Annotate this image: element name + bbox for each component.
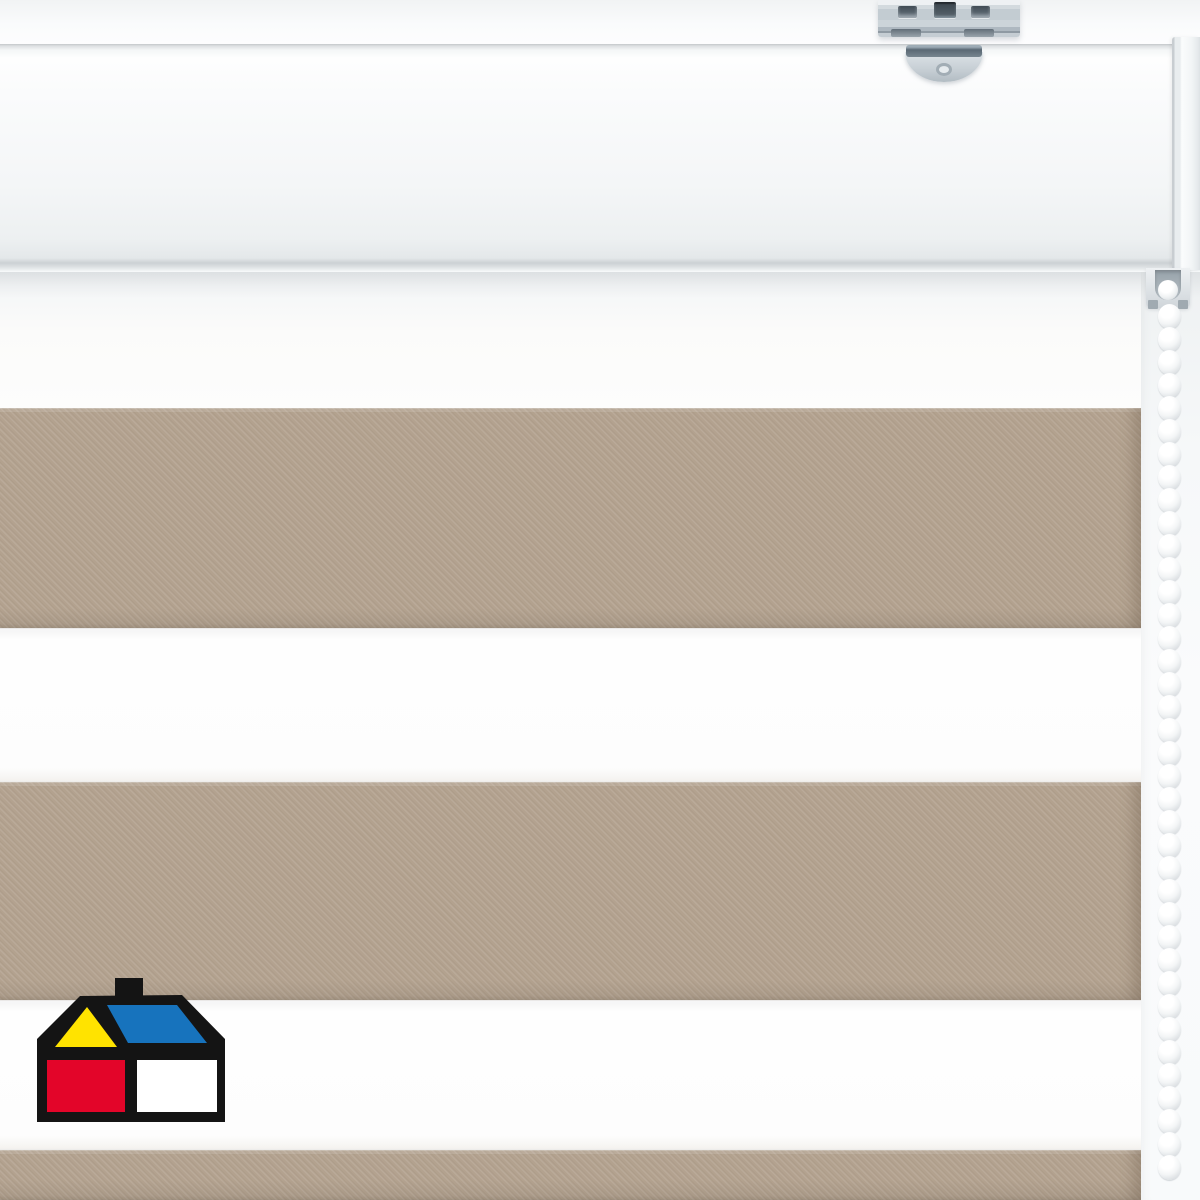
chain-bead <box>1158 948 1181 973</box>
chain-bead <box>1158 879 1181 904</box>
chain-bead <box>1158 971 1181 996</box>
chain-bead <box>1158 419 1181 444</box>
fabric-stripe-taupe <box>0 408 1141 628</box>
logo-white-square <box>137 1060 217 1112</box>
chain-bead <box>1158 787 1181 812</box>
chain-bead <box>1158 557 1181 582</box>
chain-bead <box>1158 350 1181 375</box>
pull-chain <box>1157 304 1182 1200</box>
bracket-screw-slot-middle <box>934 2 956 18</box>
chain-bead <box>1158 327 1181 352</box>
chain-bead <box>1158 741 1181 766</box>
chain-bead <box>1158 488 1181 513</box>
chain-bead <box>1158 373 1181 398</box>
headrail-shadow <box>0 272 1200 298</box>
ceiling-bracket-plate <box>878 0 1020 37</box>
chain-bead <box>1158 304 1181 329</box>
ceiling-bracket-front-tab <box>905 42 983 84</box>
chain-bead <box>1158 695 1181 720</box>
chain-bead <box>1158 856 1181 881</box>
chain-bead <box>1158 511 1181 536</box>
chain-guide <box>1146 268 1190 308</box>
chain-bead <box>1158 1109 1181 1134</box>
chain-bead <box>1158 442 1181 467</box>
bracket-notch-left <box>891 29 921 37</box>
bracket-screw-slot-left <box>898 6 917 18</box>
chain-bead <box>1158 925 1181 950</box>
chain-bead <box>1158 833 1181 858</box>
chain-bead <box>1158 1040 1181 1065</box>
chain-bead <box>1158 1086 1181 1111</box>
chain-bead <box>1158 580 1181 605</box>
fabric-stripe-white <box>0 628 1141 782</box>
chain-bead <box>1158 672 1181 697</box>
chain-bead <box>1158 1017 1181 1042</box>
chain-bead <box>1158 1132 1181 1157</box>
chain-bead <box>1158 1155 1181 1180</box>
headrail-end-cap <box>1172 37 1200 270</box>
fabric-stripe-taupe <box>0 782 1141 1000</box>
chain-bead <box>1158 396 1181 421</box>
headrail <box>0 44 1200 272</box>
bracket-notch-right <box>964 29 994 37</box>
bracket-screw-slot-right <box>971 6 990 18</box>
chain-bead <box>1158 603 1181 628</box>
chain-bead <box>1158 534 1181 559</box>
chain-bead <box>1158 718 1181 743</box>
chain-bead <box>1158 764 1181 789</box>
brand-logo <box>30 976 232 1130</box>
chain-guide-bead <box>1158 280 1178 300</box>
chain-bead <box>1158 810 1181 835</box>
fabric-stripe-taupe <box>0 1150 1141 1200</box>
chain-bead <box>1158 902 1181 927</box>
bracket-tab-slot <box>906 45 982 57</box>
product-photo <box>0 0 1200 1200</box>
chain-bead <box>1158 994 1181 1019</box>
logo-red-square <box>47 1060 125 1112</box>
chain-bead <box>1158 626 1181 651</box>
bracket-tab-hole <box>936 63 952 76</box>
chain-bead <box>1158 465 1181 490</box>
chain-bead <box>1158 1063 1181 1088</box>
chain-bead <box>1158 649 1181 674</box>
